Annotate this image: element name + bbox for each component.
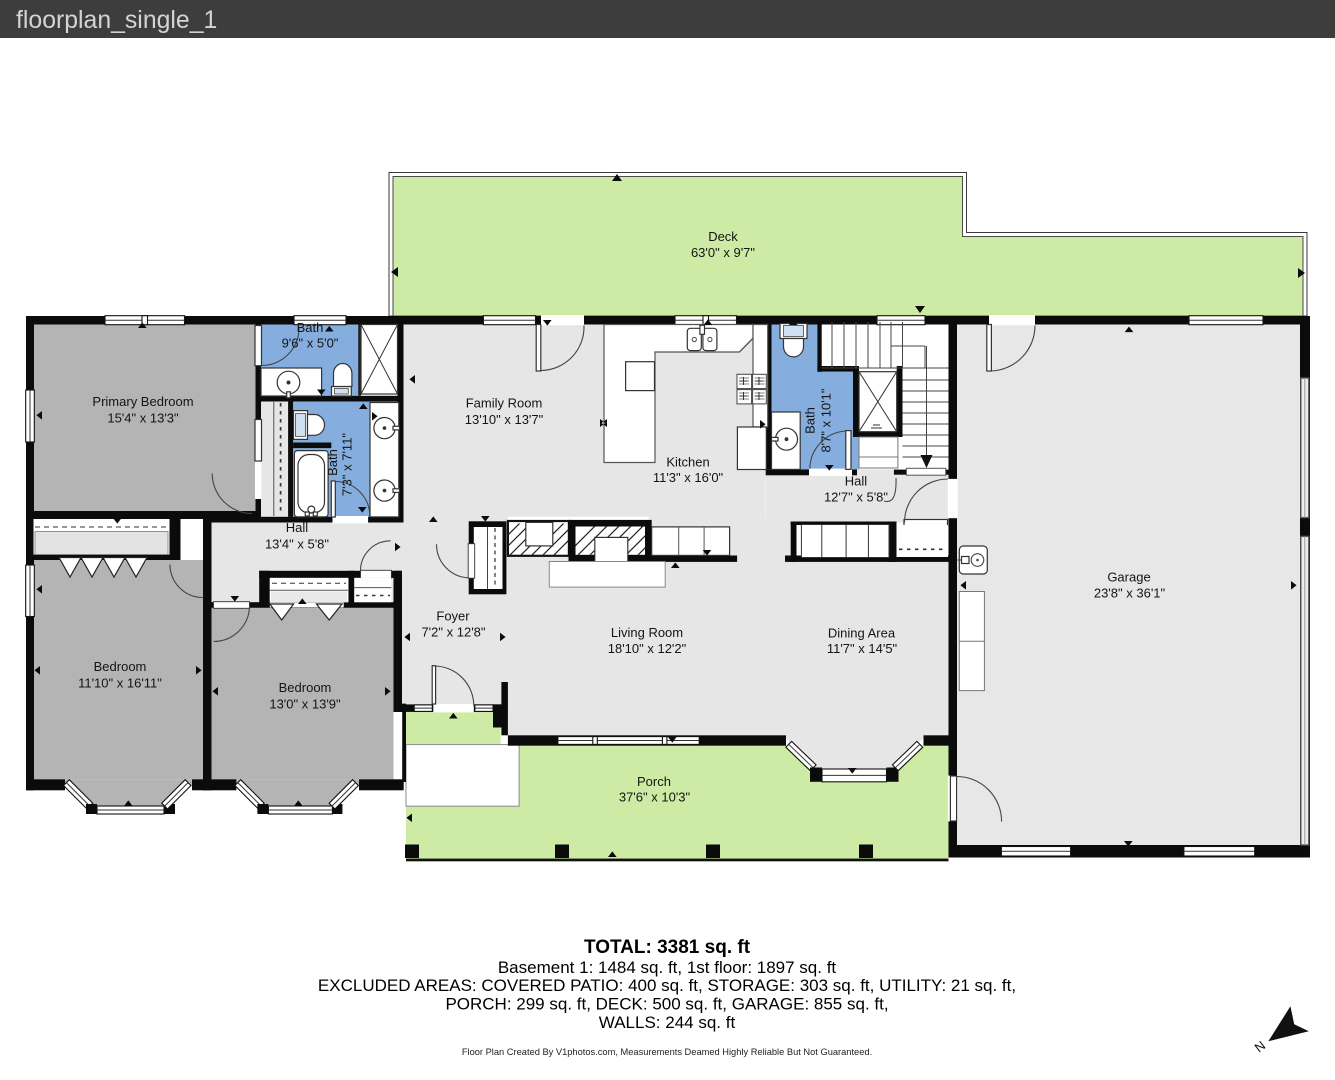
svg-text:13'0" x 13'9": 13'0" x 13'9" — [269, 697, 341, 712]
svg-text:Living Room: Living Room — [611, 625, 683, 640]
svg-text:7'2" x 12'8": 7'2" x 12'8" — [421, 625, 485, 640]
svg-text:Bedroom: Bedroom — [279, 680, 332, 695]
svg-text:Bath: Bath — [297, 320, 324, 335]
svg-text:13'10" x 13'7": 13'10" x 13'7" — [465, 412, 544, 427]
svg-text:Porch: Porch — [637, 774, 671, 789]
svg-text:TOTAL: 3381 sq. ft: TOTAL: 3381 sq. ft — [584, 937, 751, 958]
svg-text:Hall: Hall — [845, 474, 868, 489]
svg-text:12'7" x 5'8": 12'7" x 5'8" — [824, 490, 888, 505]
svg-text:63'0" x 9'7": 63'0" x 9'7" — [691, 245, 755, 260]
svg-text:Deck: Deck — [708, 229, 738, 244]
svg-text:Bath: Bath — [803, 407, 818, 434]
svg-text:WALLS: 244 sq. ft: WALLS: 244 sq. ft — [599, 1013, 736, 1032]
svg-text:11'3" x 16'0": 11'3" x 16'0" — [653, 470, 724, 485]
svg-text:23'8" x 36'1": 23'8" x 36'1" — [1094, 586, 1166, 601]
svg-text:37'6" x 10'3": 37'6" x 10'3" — [619, 790, 691, 805]
svg-text:11'10" x 16'11": 11'10" x 16'11" — [78, 676, 162, 691]
svg-text:Bedroom: Bedroom — [94, 659, 147, 674]
svg-text:Dining Area: Dining Area — [828, 626, 896, 641]
svg-text:Kitchen: Kitchen — [666, 455, 709, 470]
svg-text:7'3" x 7'11": 7'3" x 7'11" — [340, 433, 355, 496]
svg-text:EXCLUDED AREAS: COVERED PATIO:: EXCLUDED AREAS: COVERED PATIO: 400 sq. f… — [318, 976, 1016, 995]
svg-text:Primary Bedroom: Primary Bedroom — [92, 394, 193, 409]
svg-text:8'7" x 10'1": 8'7" x 10'1" — [819, 388, 834, 452]
svg-text:Basement 1: 1484 sq. ft, 1st f: Basement 1: 1484 sq. ft, 1st floor: 1897… — [498, 958, 837, 977]
svg-text:Foyer: Foyer — [436, 609, 470, 624]
svg-text:18'10" x 12'2": 18'10" x 12'2" — [608, 641, 687, 656]
svg-text:Garage: Garage — [1107, 570, 1150, 585]
svg-text:Bath: Bath — [325, 449, 340, 476]
svg-text:13'4" x 5'8": 13'4" x 5'8" — [265, 537, 329, 552]
svg-text:floorplan_single_1: floorplan_single_1 — [16, 7, 217, 34]
svg-text:Family Room: Family Room — [466, 396, 543, 411]
svg-text:15'4" x 13'3": 15'4" x 13'3" — [107, 411, 179, 426]
svg-text:Hall: Hall — [286, 520, 309, 535]
svg-text:9'6" x 5'0": 9'6" x 5'0" — [282, 336, 339, 351]
svg-text:PORCH: 299 sq. ft, DECK: 500 s: PORCH: 299 sq. ft, DECK: 500 sq. ft, GAR… — [445, 995, 888, 1014]
svg-text:11'7" x 14'5": 11'7" x 14'5" — [827, 641, 898, 656]
svg-text:Floor Plan Created By V1photos: Floor Plan Created By V1photos.com, Meas… — [462, 1047, 872, 1057]
